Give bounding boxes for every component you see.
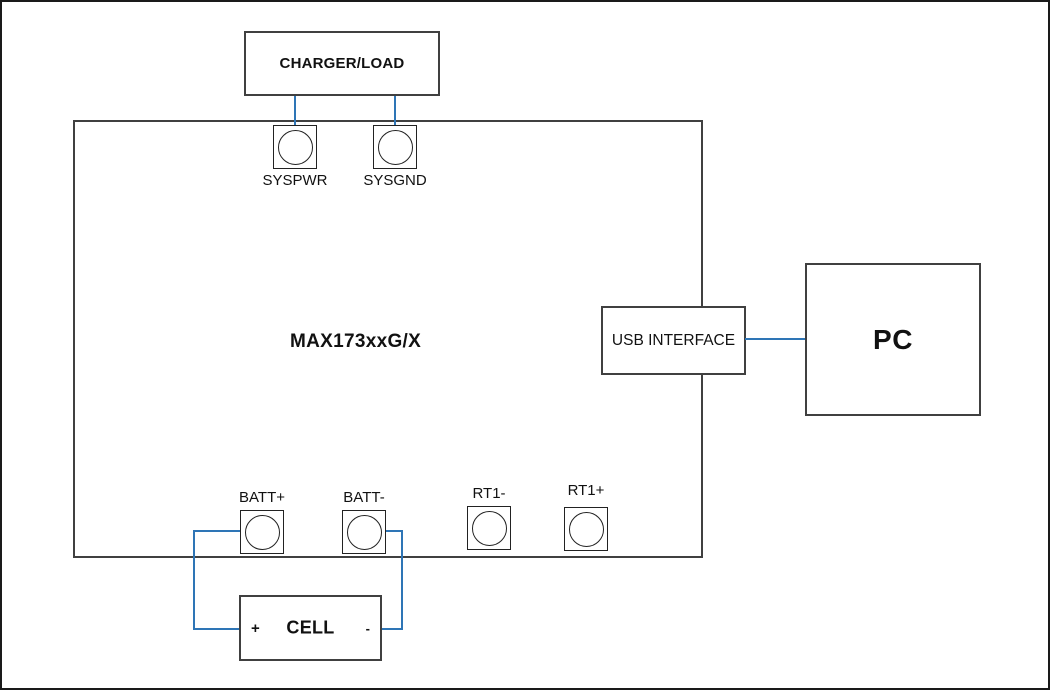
syspwr-pad-circle [278, 130, 313, 165]
terminal-rt1-minus-label: RT1- [472, 485, 505, 502]
wire-battplus-horizontal [193, 530, 240, 532]
board-label: MAX173xxG/X [290, 331, 421, 353]
wire-battplus-to-cell [193, 628, 239, 630]
terminal-batt-plus-label: BATT+ [239, 489, 285, 506]
wire-battplus-vertical [193, 530, 195, 630]
batt-minus-pad-circle [347, 515, 382, 550]
wire-charger-to-sysgnd [394, 96, 396, 126]
terminal-rt1-minus: RT1- [467, 506, 511, 550]
wire-battminus-to-cell [382, 628, 403, 630]
terminal-batt-minus: BATT- [342, 510, 386, 554]
usb-interface-label: USB INTERFACE [612, 332, 735, 350]
charger-load-box: CHARGER/LOAD [244, 31, 440, 96]
pc-label: PC [873, 324, 913, 356]
sysgnd-pad-circle [378, 130, 413, 165]
terminal-batt-plus: BATT+ [240, 510, 284, 554]
batt-plus-pad-circle [245, 515, 280, 550]
terminal-syspwr: SYSPWR [273, 125, 317, 169]
pc-box: PC [805, 263, 981, 416]
wire-charger-to-syspwr [294, 96, 296, 126]
terminal-batt-minus-label: BATT- [343, 489, 384, 506]
terminal-syspwr-label: SYSPWR [262, 172, 327, 189]
rt1-minus-pad-circle [472, 511, 507, 546]
cell-label: CELL [286, 618, 334, 639]
wire-usb-to-pc [745, 338, 805, 340]
terminal-sysgnd: SYSGND [373, 125, 417, 169]
cell-box: + CELL - [239, 595, 382, 661]
usb-interface-box: USB INTERFACE [601, 306, 746, 375]
terminal-sysgnd-label: SYSGND [363, 172, 426, 189]
wire-battminus-vertical [401, 530, 403, 630]
charger-load-label: CHARGER/LOAD [280, 55, 405, 72]
cell-negative-mark: - [366, 621, 370, 636]
terminal-rt1-plus-label: RT1+ [568, 482, 605, 499]
terminal-rt1-plus: RT1+ [564, 507, 608, 551]
rt1-plus-pad-circle [569, 512, 604, 547]
cell-positive-mark: + [251, 620, 260, 637]
connection-diagram-canvas: CHARGER/LOAD MAX173xxG/X SYSPWR SYSGND U… [0, 0, 1050, 690]
